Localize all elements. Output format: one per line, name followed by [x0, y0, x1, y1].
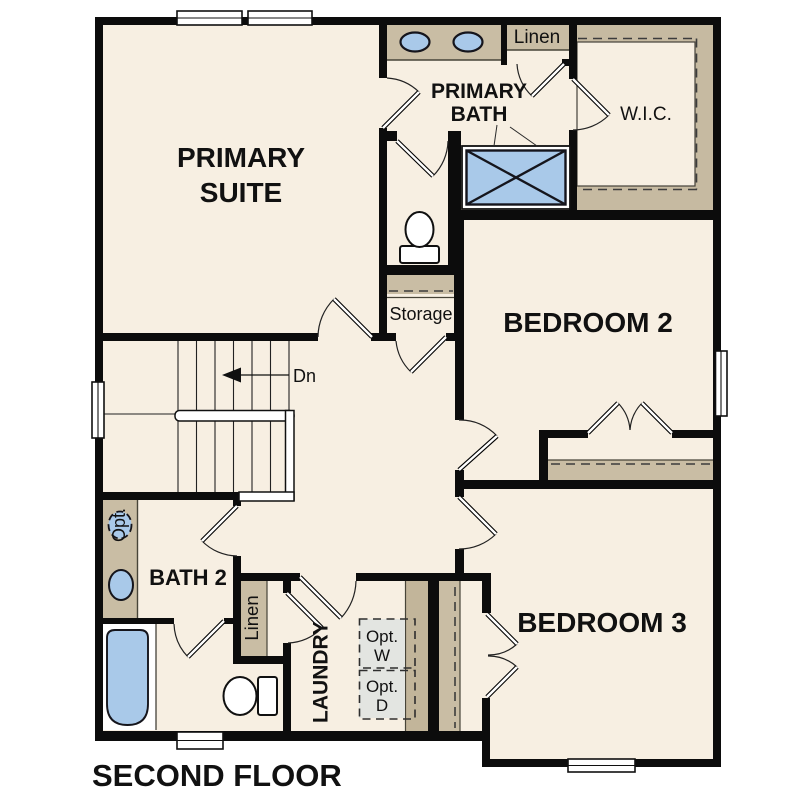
svg-text:Opt.: Opt.	[109, 508, 129, 542]
svg-text:Storage: Storage	[389, 304, 452, 324]
svg-text:LAUNDRY: LAUNDRY	[310, 621, 333, 723]
svg-text:SECOND FLOOR: SECOND FLOOR	[92, 758, 342, 793]
svg-text:Opt.: Opt.	[366, 627, 398, 646]
svg-text:Dn: Dn	[293, 366, 316, 386]
svg-text:PRIMARY: PRIMARY	[177, 142, 305, 173]
svg-text:BEDROOM 3: BEDROOM 3	[517, 607, 687, 638]
svg-text:BEDROOM 2: BEDROOM 2	[503, 307, 673, 338]
svg-text:D: D	[376, 696, 388, 715]
svg-text:PRIMARY: PRIMARY	[431, 80, 527, 103]
svg-text:W.I.C.: W.I.C.	[620, 104, 672, 125]
svg-text:Linen: Linen	[241, 595, 262, 640]
svg-text:W: W	[374, 646, 390, 665]
svg-text:Linen: Linen	[514, 27, 561, 48]
svg-text:BATH: BATH	[451, 103, 508, 126]
svg-text:BATH 2: BATH 2	[149, 565, 227, 590]
svg-text:Opt.: Opt.	[366, 677, 398, 696]
svg-text:SUITE: SUITE	[200, 177, 282, 208]
